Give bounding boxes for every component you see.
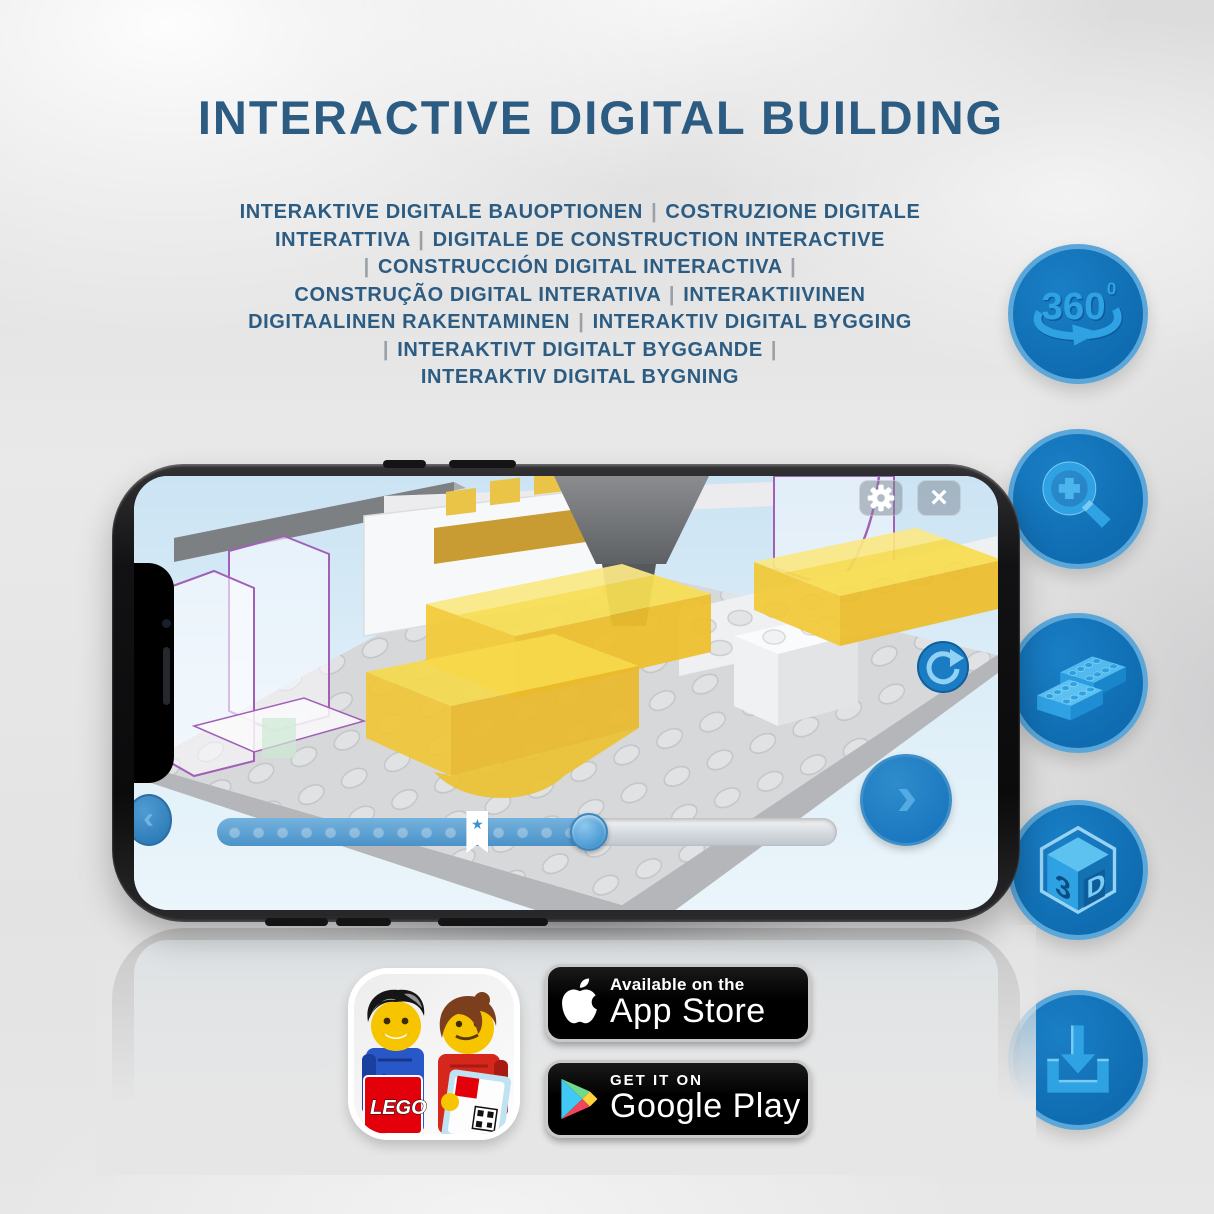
- progress-dot: [325, 827, 336, 838]
- progress-dot: [253, 827, 264, 838]
- subtitle-line: INTERATTIVA | DIGITALE DE CONSTRUCTION I…: [60, 227, 1100, 255]
- rotate-icon: [917, 641, 969, 693]
- rotate-view-button[interactable]: [917, 641, 969, 693]
- feature-bricks: [1008, 613, 1148, 753]
- phone-device: ×: [112, 464, 1020, 922]
- google-play-badge[interactable]: GET IT ON Google Play: [545, 1060, 811, 1138]
- apple-logo-icon: [548, 977, 610, 1029]
- app-store-badge[interactable]: Available on the App Store: [545, 964, 811, 1042]
- progress-dot: [493, 827, 504, 838]
- 3d-cube-icon: 3 D: [1030, 822, 1126, 918]
- subtitle-line: DIGITAALINEN RAKENTAMINEN | INTERAKTIV D…: [60, 309, 1100, 337]
- lego-bricks-icon: [1030, 635, 1126, 731]
- subtitle-line: INTERAKTIVE DIGITALE BAUOPTIONEN | COSTR…: [60, 199, 1100, 227]
- svg-text:LEGO: LEGO: [370, 1097, 427, 1119]
- progress-dot: [229, 827, 240, 838]
- subtitle-line: | CONSTRUCCIÓN DIGITAL INTERACTIVA |: [60, 254, 1100, 282]
- build-progress-bar[interactable]: ★: [217, 818, 837, 846]
- progress-dot: [373, 827, 384, 838]
- subtitle-line: CONSTRUÇÃO DIGITAL INTERATIVA | INTERAKT…: [60, 282, 1100, 310]
- google-play-logo-icon: [548, 1075, 610, 1123]
- side-button: [336, 918, 391, 926]
- progress-dot: [445, 827, 456, 838]
- subtitle-line: INTERAKTIV DIGITAL BYGNING: [60, 364, 1100, 392]
- app-store-label: App Store: [610, 994, 766, 1030]
- feature-zoom: [1008, 429, 1148, 569]
- front-camera: [162, 619, 171, 628]
- next-step-button[interactable]: [860, 754, 952, 846]
- subtitle-line: | INTERAKTIVT DIGITALT BYGGANDE |: [60, 337, 1100, 365]
- poster: INTERACTIVE DIGITAL BUILDING INTERAKTIVE…: [0, 0, 1214, 1214]
- power-button: [438, 918, 548, 926]
- close-icon: ×: [930, 483, 948, 513]
- progress-dots: [217, 827, 576, 838]
- progress-slider-handle[interactable]: [570, 813, 608, 851]
- feature-360-rotation: 360 360 0 0: [1008, 244, 1148, 384]
- lego-app-icon[interactable]: LEGO: [348, 968, 520, 1140]
- app-screen: ×: [134, 476, 998, 910]
- progress-dot: [277, 827, 288, 838]
- magnifier-plus-icon: [1030, 451, 1126, 547]
- progress-dot: [541, 827, 552, 838]
- star-icon: ★: [471, 816, 484, 832]
- progress-dot: [421, 827, 432, 838]
- settings-button[interactable]: [859, 480, 903, 516]
- chevron-left-icon: [137, 806, 161, 834]
- gear-icon: [866, 483, 896, 513]
- google-play-label: Google Play: [610, 1089, 801, 1125]
- page-title: INTERACTIVE DIGITAL BUILDING: [0, 90, 1202, 145]
- progress-dot: [397, 827, 408, 838]
- close-button[interactable]: ×: [917, 480, 961, 516]
- lego-minifigures-art: LEGO: [354, 974, 514, 1134]
- subtitle-multilingual: INTERAKTIVE DIGITALE BAUOPTIONEN | COSTR…: [60, 199, 1100, 392]
- volume-button: [449, 460, 516, 468]
- progress-dot: [517, 827, 528, 838]
- feature-3d-view: 3 D: [1008, 800, 1148, 940]
- side-button: [265, 918, 328, 926]
- download-icon: [1030, 1012, 1126, 1108]
- volume-button: [383, 460, 426, 468]
- 360-rotation-icon: 360 360 0 0: [1030, 266, 1126, 362]
- chevron-right-icon: [883, 774, 929, 826]
- progress-fill: [217, 818, 589, 846]
- svg-text:0: 0: [1107, 278, 1117, 298]
- progress-dot: [301, 827, 312, 838]
- earpiece-speaker: [163, 647, 170, 705]
- phone-notch: [134, 563, 174, 783]
- progress-dot: [349, 827, 360, 838]
- svg-text:360: 360: [1042, 285, 1106, 328]
